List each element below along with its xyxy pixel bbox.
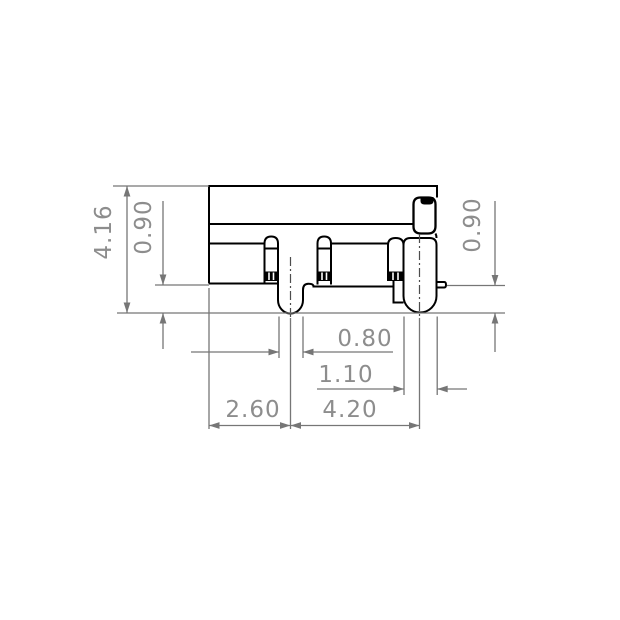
right-lead-step — [388, 281, 404, 303]
middle-post-crimp — [318, 272, 332, 282]
arrow-right-icon — [280, 422, 291, 429]
shield-clip-notch — [421, 197, 434, 205]
clip-to-bullet-join — [436, 234, 437, 239]
label-left-lead-width: 0.80 — [337, 326, 392, 352]
arrow-left-icon — [437, 386, 448, 393]
label-edge-to-lead: 2.60 — [225, 397, 280, 423]
arrow-left-icon — [209, 422, 220, 429]
arrow-right-icon — [269, 349, 280, 356]
arrow-left-icon — [303, 349, 314, 356]
label-right-lead-width: 1.10 — [318, 362, 373, 388]
right-post-crimp — [388, 272, 404, 282]
label-overall-height: 4.16 — [91, 204, 117, 259]
arrow-right-icon — [394, 386, 405, 393]
arrow-up-icon — [492, 313, 499, 324]
arrow-up-icon — [124, 186, 131, 197]
label-lead-pitch: 4.20 — [322, 397, 377, 423]
drawing-canvas: 4.16 0.90 0.90 0.80 1.10 2.60 4.20 — [0, 0, 620, 620]
technical-drawing: 4.16 0.90 0.90 0.80 1.10 2.60 4.20 — [0, 0, 620, 620]
arrow-down-icon — [124, 303, 131, 314]
left-lead-u-bend — [278, 284, 388, 314]
label-right-standoff: 0.90 — [460, 197, 486, 252]
arrow-left-icon — [291, 422, 302, 429]
arrow-up-icon — [160, 313, 167, 324]
left-post-crimp — [265, 272, 279, 282]
arrow-right-icon — [409, 422, 420, 429]
arrow-down-icon — [160, 275, 167, 286]
arrow-down-icon — [492, 275, 499, 286]
right-solder-tab — [437, 282, 447, 288]
dimension-lines — [113, 186, 505, 429]
component-outline — [209, 186, 446, 314]
label-left-standoff: 0.90 — [131, 199, 157, 254]
